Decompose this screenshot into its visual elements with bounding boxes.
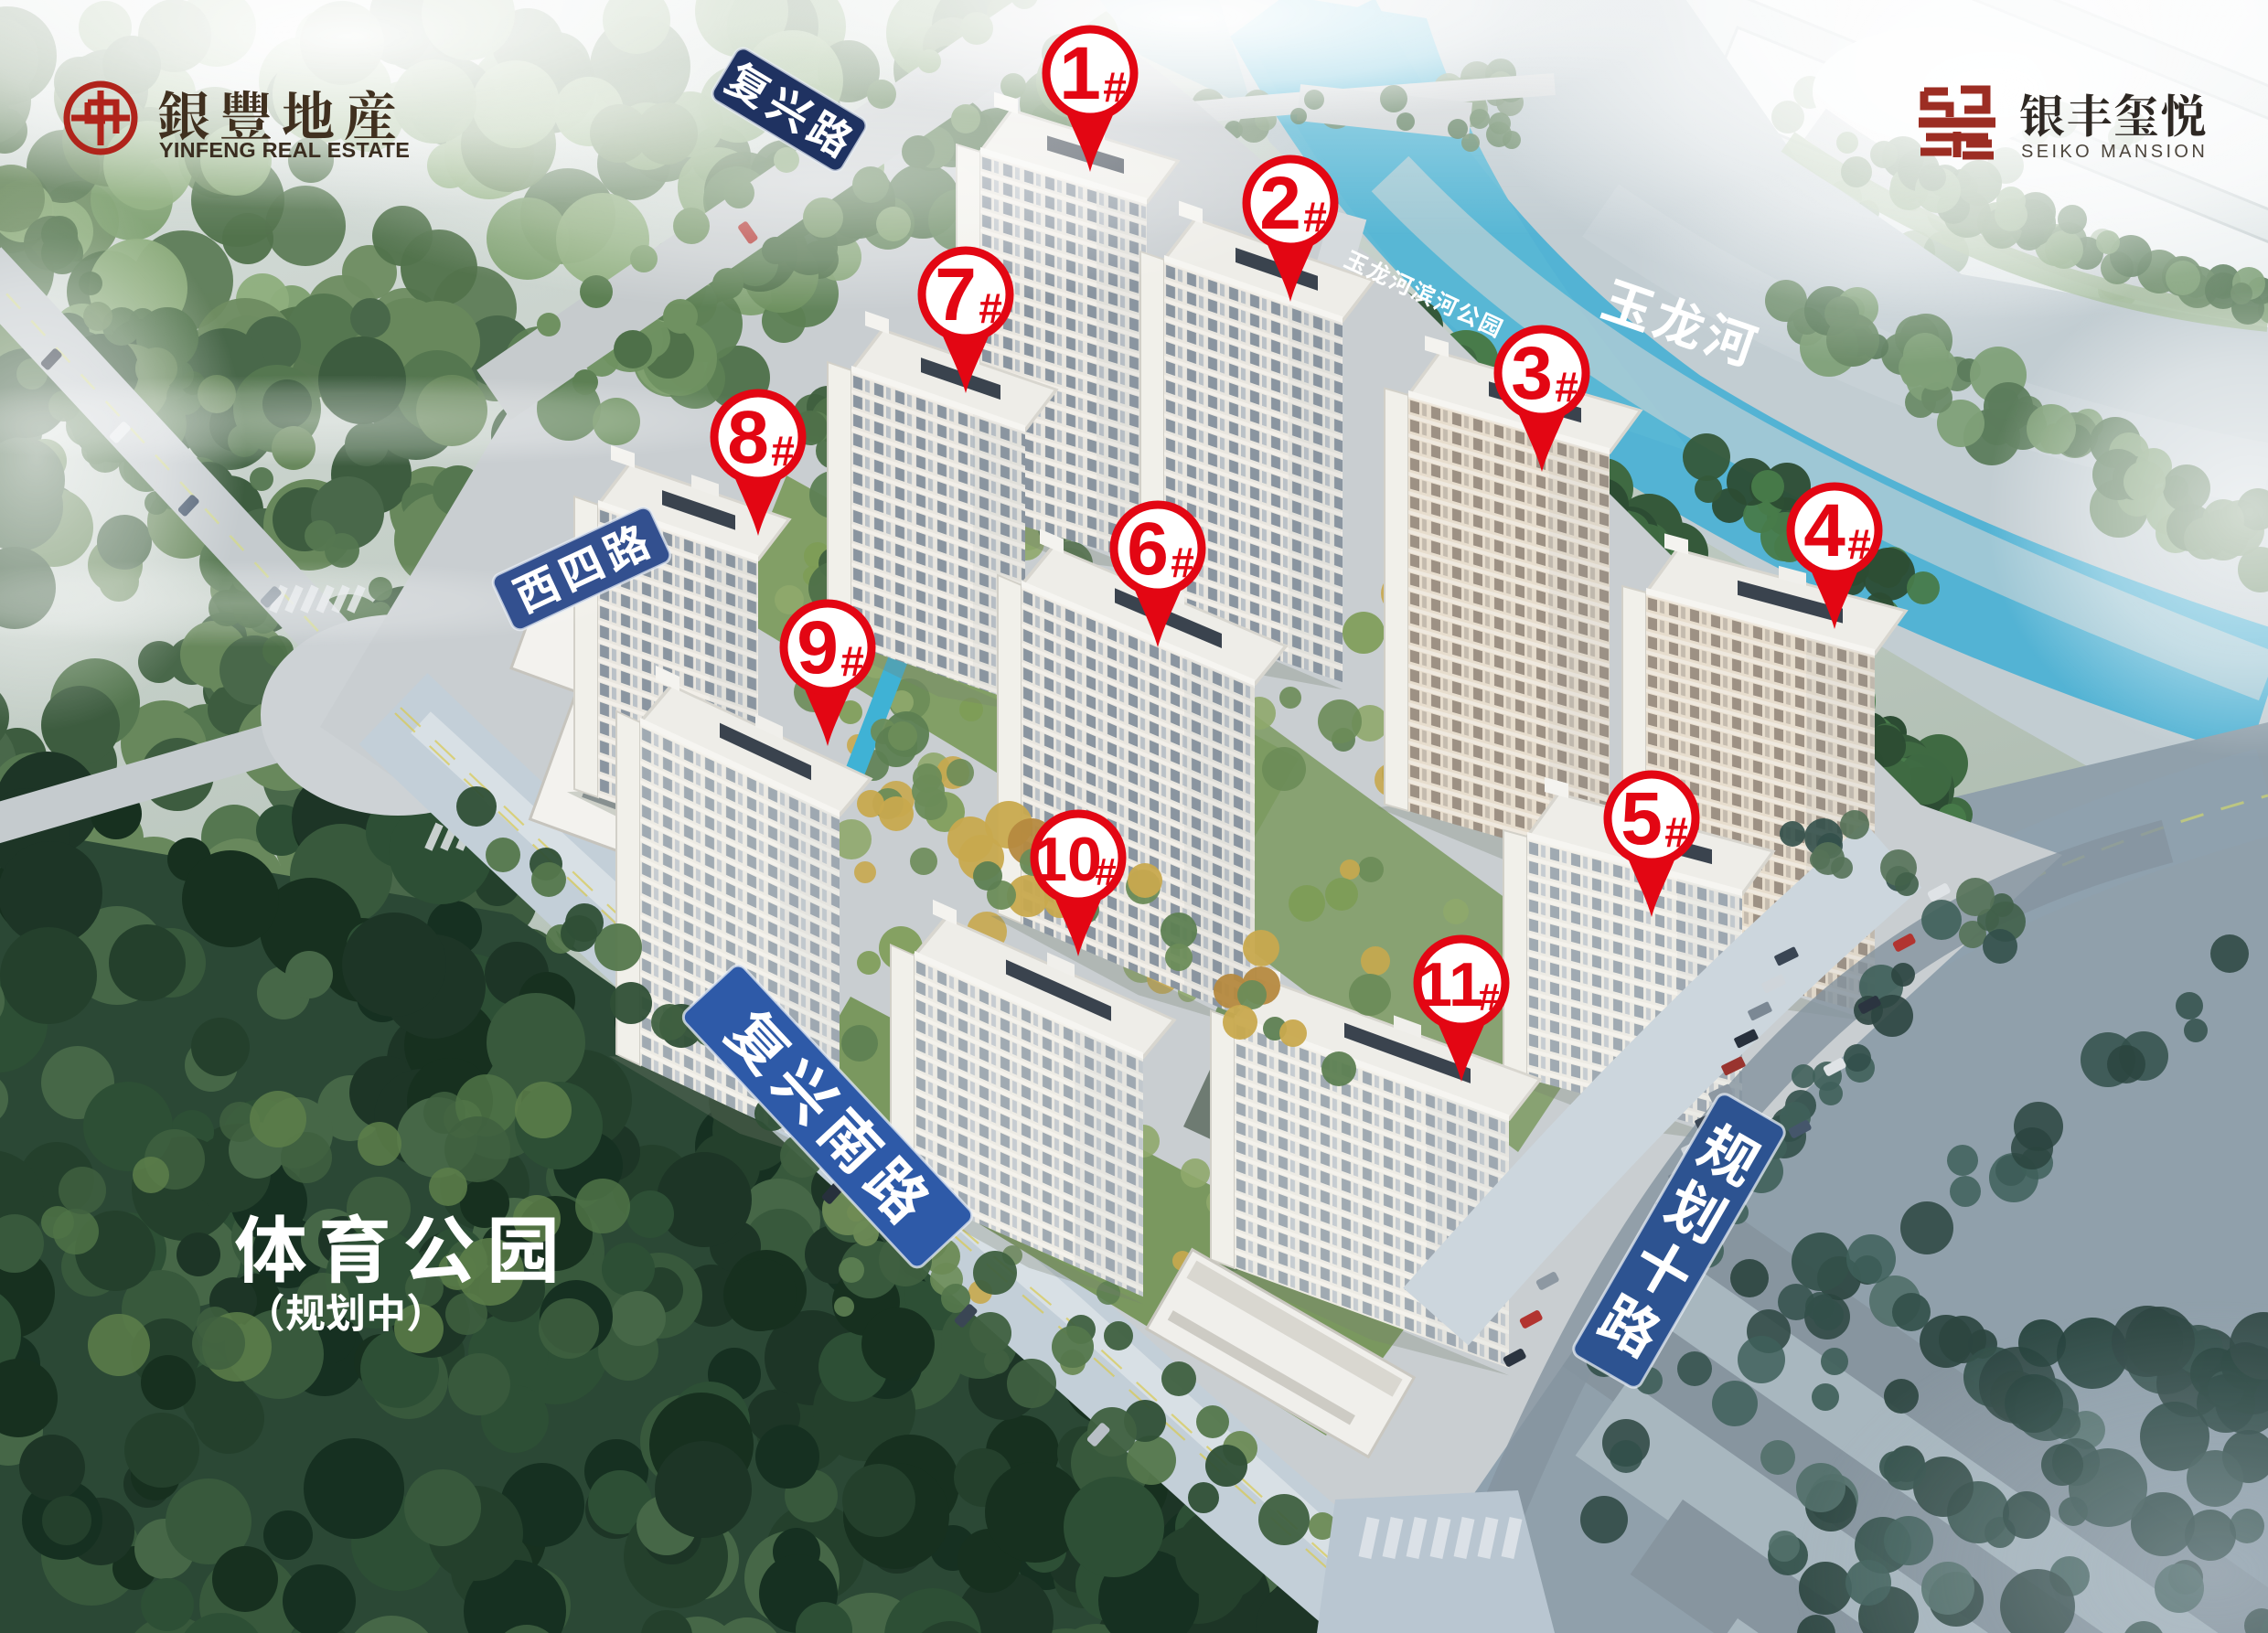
svg-text:#: #: [1847, 520, 1871, 568]
svg-text:9: 9: [797, 606, 839, 689]
svg-text:11: 11: [1417, 950, 1483, 1019]
svg-text:3: 3: [1511, 332, 1553, 415]
svg-text:1: 1: [1059, 32, 1101, 115]
svg-text:#: #: [1171, 539, 1194, 586]
svg-text:#: #: [840, 637, 864, 685]
svg-text:#: #: [1303, 193, 1327, 240]
svg-text:#: #: [771, 427, 795, 475]
svg-text:YINFENG REAL ESTATE: YINFENG REAL ESTATE: [159, 138, 410, 162]
svg-text:#: #: [1103, 63, 1127, 111]
svg-text:#: #: [1555, 363, 1578, 411]
svg-text:4: 4: [1803, 489, 1845, 572]
svg-text:2: 2: [1259, 162, 1301, 245]
svg-text:10: 10: [1032, 825, 1102, 894]
svg-text:#: #: [1095, 850, 1116, 893]
svg-text:8: 8: [727, 396, 769, 479]
svg-text:#: #: [979, 284, 1002, 332]
svg-text:6: 6: [1127, 507, 1169, 591]
svg-text:SEIKO MANSION: SEIKO MANSION: [2021, 142, 2208, 162]
svg-text:5: 5: [1621, 777, 1663, 860]
svg-text:#: #: [1478, 976, 1499, 1019]
svg-text:7: 7: [935, 253, 977, 336]
svg-text:#: #: [1664, 808, 1688, 856]
